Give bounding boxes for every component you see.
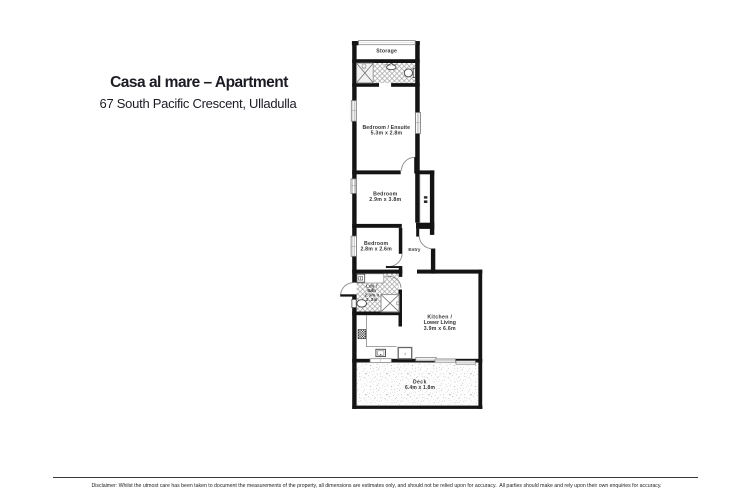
svg-text:2.3m: 2.3m xyxy=(366,297,378,302)
svg-text:5.3m x 2.8m: 5.3m x 2.8m xyxy=(371,130,403,136)
svg-text:Entry: Entry xyxy=(408,247,421,252)
svg-text:3.9m x 6.6m: 3.9m x 6.6m xyxy=(424,326,456,332)
svg-text:2.8m x 2.6m: 2.8m x 2.6m xyxy=(360,247,392,253)
svg-text:2.9m x 3.8m: 2.9m x 3.8m xyxy=(369,197,401,203)
svg-text:6.4m x 1.8m: 6.4m x 1.8m xyxy=(405,385,436,391)
svg-text:Storage: Storage xyxy=(376,49,397,55)
